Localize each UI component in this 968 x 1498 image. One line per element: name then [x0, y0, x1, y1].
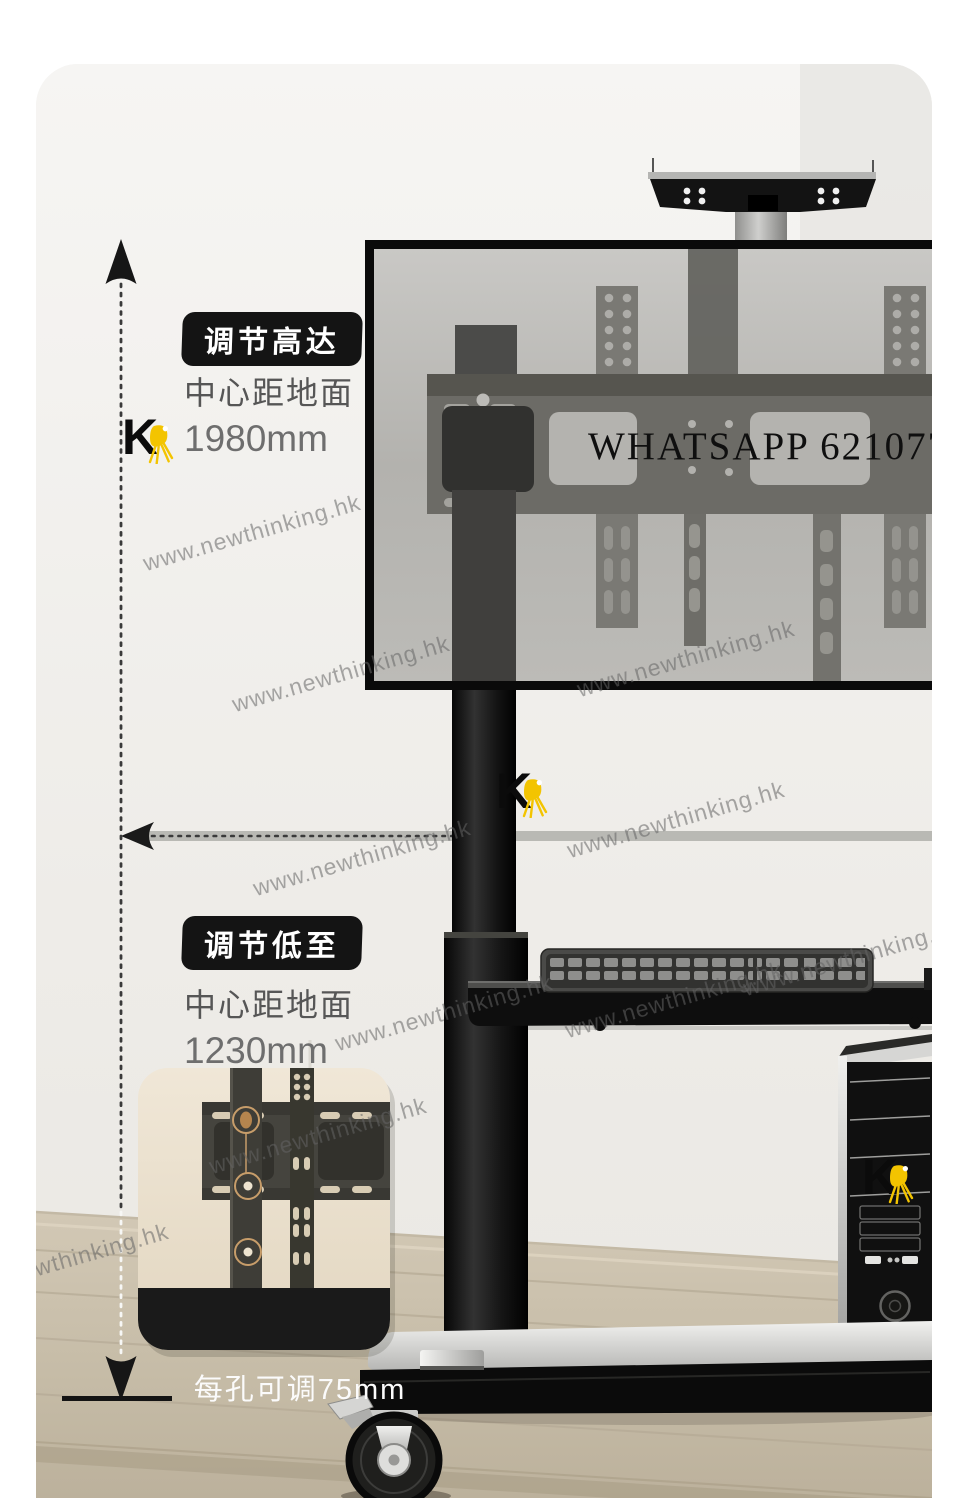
page: www.newthinking.hkwww.newthinking.hkwww.… [0, 0, 968, 1498]
badge-adjust-low: 调节低至 [181, 916, 363, 970]
chair-icon [520, 778, 552, 818]
badge-adjust-high: 调节高达 [181, 312, 363, 366]
brand-logo: K [496, 766, 566, 832]
annotation-high: 中心距地面 1980mm [184, 368, 354, 460]
brand-logo: K [122, 412, 192, 478]
inset-caption: 每孔可调75mm [174, 1366, 426, 1408]
chair-icon [146, 424, 178, 464]
chair-icon [886, 1164, 918, 1204]
product-card: www.newthinking.hkwww.newthinking.hkwww.… [36, 64, 932, 1498]
annotation-low-caption: 中心距地面 [184, 980, 354, 1026]
annotation-high-caption: 中心距地面 [184, 368, 354, 414]
annotation-low-value: 1230mm [184, 1030, 354, 1072]
rolling-base [360, 1321, 932, 1414]
annotation-low: 中心距地面 1230mm [184, 980, 354, 1072]
annotation-high-value: 1980mm [184, 418, 354, 460]
inset-photo [138, 1068, 395, 1357]
ground-line [62, 1396, 172, 1401]
keyboard [541, 949, 873, 992]
brand-logo: K [862, 1152, 932, 1218]
product-illustration [36, 64, 932, 1498]
whatsapp-overlay: WHATSAPP 62107759 [588, 424, 932, 469]
